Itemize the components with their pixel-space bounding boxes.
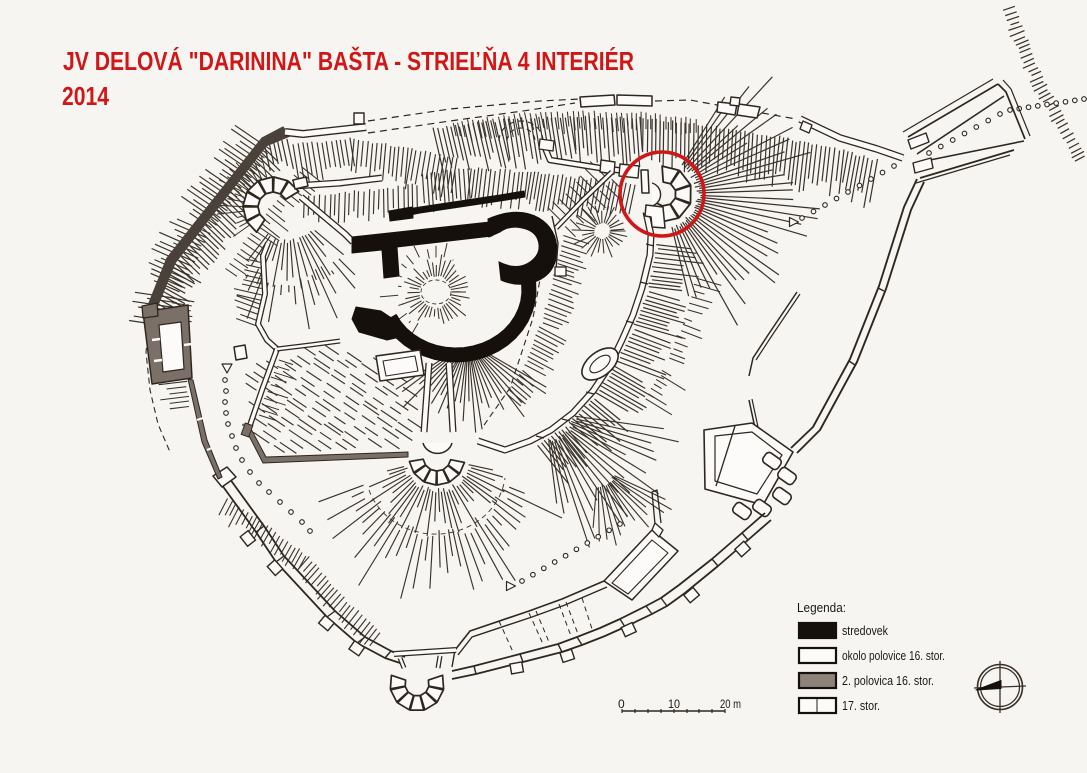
svg-text:17. stor.: 17. stor. xyxy=(842,698,880,713)
svg-text:stredovek: stredovek xyxy=(842,623,888,638)
svg-text:JV DELOVÁ "DARININA" BAŠTA - S: JV DELOVÁ "DARININA" BAŠTA - STRIEĽŇA 4 … xyxy=(63,46,634,76)
svg-text:2. polovica 16. stor.: 2. polovica 16. stor. xyxy=(842,673,934,688)
svg-text:20 m: 20 m xyxy=(720,697,741,711)
svg-text:10: 10 xyxy=(668,697,680,711)
svg-text:0: 0 xyxy=(618,697,625,711)
svg-text:Legenda:: Legenda: xyxy=(797,600,846,615)
svg-text:okolo polovice 16. stor.: okolo polovice 16. stor. xyxy=(842,648,945,663)
svg-text:2014: 2014 xyxy=(62,81,109,111)
